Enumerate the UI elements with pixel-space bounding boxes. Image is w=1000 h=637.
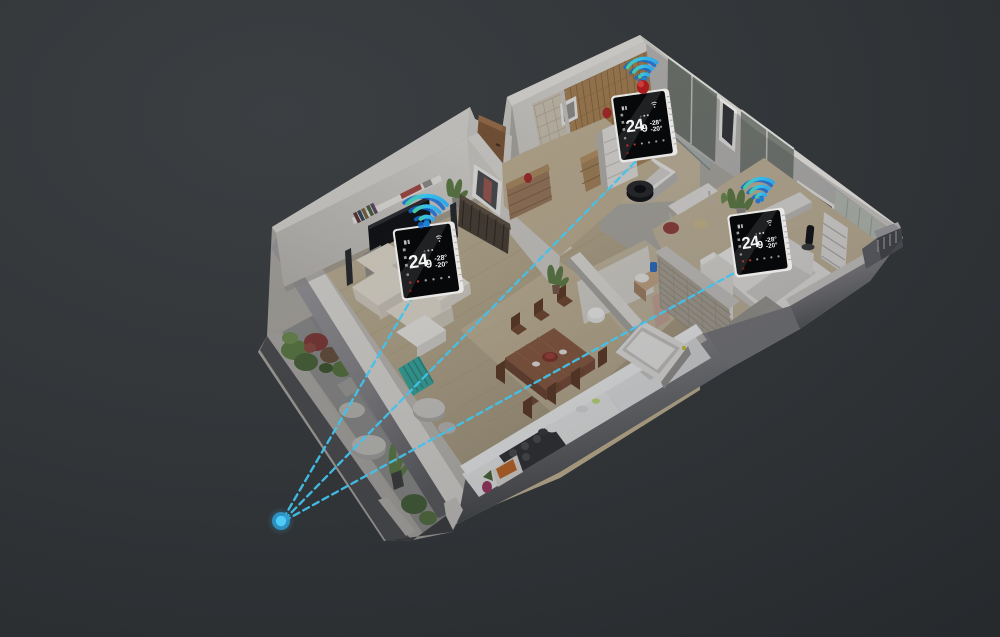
svg-text:-20°: -20°	[650, 124, 663, 134]
svg-text:-20°: -20°	[765, 241, 778, 251]
